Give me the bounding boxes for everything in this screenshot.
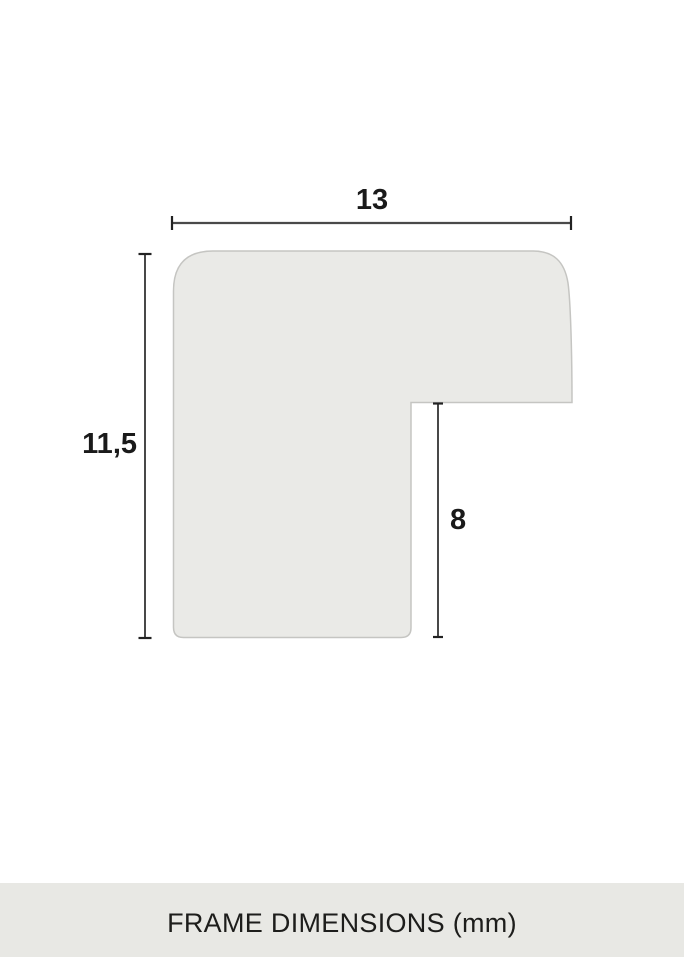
frame-profile-shape (174, 251, 573, 638)
rabbet-dimension-line (433, 404, 443, 638)
screen: 13 11,5 8 FRAME DIMENSIONS (mm) (0, 0, 684, 957)
frame-profile-diagram (0, 0, 684, 700)
width-dimension-label: 13 (322, 184, 422, 216)
height-dimension-label: 11,5 (55, 428, 137, 460)
height-dimension-line (139, 254, 152, 638)
footer-bar: FRAME DIMENSIONS (mm) (0, 883, 684, 957)
width-dimension-line (172, 216, 571, 230)
frame-dimensions-caption: FRAME DIMENSIONS (mm) (167, 908, 517, 939)
rabbet-dimension-label: 8 (450, 504, 466, 536)
